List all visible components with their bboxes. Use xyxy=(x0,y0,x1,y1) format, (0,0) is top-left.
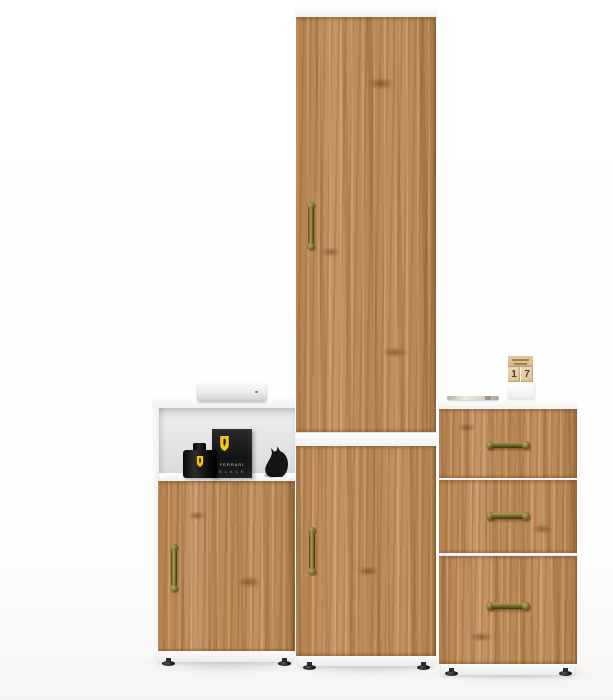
scene: FERRARI B L A C K xyxy=(0,0,613,700)
wood-knot xyxy=(457,423,477,432)
handle-shaft xyxy=(491,442,525,448)
left-cabinet-foot xyxy=(278,661,291,666)
perfume-bottle xyxy=(183,450,217,478)
calendar-digit-cube: 1 xyxy=(508,367,520,382)
tall-cabinet-foot xyxy=(417,665,430,670)
drawer-unit xyxy=(438,399,578,676)
calendar-base xyxy=(507,382,534,398)
tall-cabinet-foot xyxy=(303,665,316,670)
cube-calendar: 1 7 xyxy=(507,356,534,398)
wood-knot xyxy=(366,77,396,90)
media-box xyxy=(197,383,267,402)
calendar-month-block xyxy=(508,356,533,367)
pen-grip xyxy=(485,396,491,400)
drawer-2 xyxy=(439,480,577,553)
handle-shaft xyxy=(171,549,177,587)
left-door-handle xyxy=(169,544,179,592)
calendar-day-text xyxy=(514,363,527,365)
drawer-3-handle xyxy=(486,599,530,613)
wood-knot xyxy=(320,247,342,257)
perfume-box: FERRARI B L A C K xyxy=(212,429,252,478)
calendar-month-text xyxy=(512,359,529,361)
wood-knot xyxy=(531,524,553,534)
drawer-2-handle xyxy=(486,509,530,523)
drawer-unit-foot xyxy=(559,671,572,676)
perfume-box-brand-text: FERRARI xyxy=(212,462,252,467)
media-box-led xyxy=(255,391,258,393)
ferrari-shield-icon xyxy=(219,436,230,451)
tall-cabinet-lower-door xyxy=(296,446,436,656)
drawer-1-handle xyxy=(486,438,530,452)
handle-shaft xyxy=(309,532,315,570)
left-cabinet-foot xyxy=(162,661,175,666)
black-cat-figurine xyxy=(262,442,290,478)
left-cabinet-base xyxy=(157,651,293,662)
drawer-unit-foot xyxy=(445,671,458,676)
wood-knot xyxy=(236,576,262,588)
handle-shaft xyxy=(491,603,525,609)
drawer-unit-base xyxy=(441,664,575,675)
wood-knot xyxy=(356,566,380,576)
wood-knot xyxy=(469,632,493,642)
tall-cabinet-upper-handle xyxy=(306,202,316,250)
tall-cabinet-base xyxy=(298,656,434,666)
drawer-1 xyxy=(439,409,577,478)
handle-shaft xyxy=(308,207,314,245)
wood-knot xyxy=(188,511,206,520)
left-cabinet-door xyxy=(158,481,295,651)
wood-knot xyxy=(382,347,408,358)
calendar-digit: 1 xyxy=(511,369,517,380)
tall-cabinet-lower-handle xyxy=(307,527,317,575)
perfume-box-variant-text: B L A C K xyxy=(212,469,252,474)
calendar-digit-cube: 7 xyxy=(521,367,533,382)
tall-cabinet xyxy=(295,6,437,670)
calendar-digit: 7 xyxy=(524,369,530,380)
tall-cabinet-upper-door xyxy=(296,17,436,432)
drawer-3 xyxy=(439,556,577,664)
pen xyxy=(447,396,499,400)
ferrari-shield-icon xyxy=(196,456,204,467)
handle-shaft xyxy=(491,513,525,519)
